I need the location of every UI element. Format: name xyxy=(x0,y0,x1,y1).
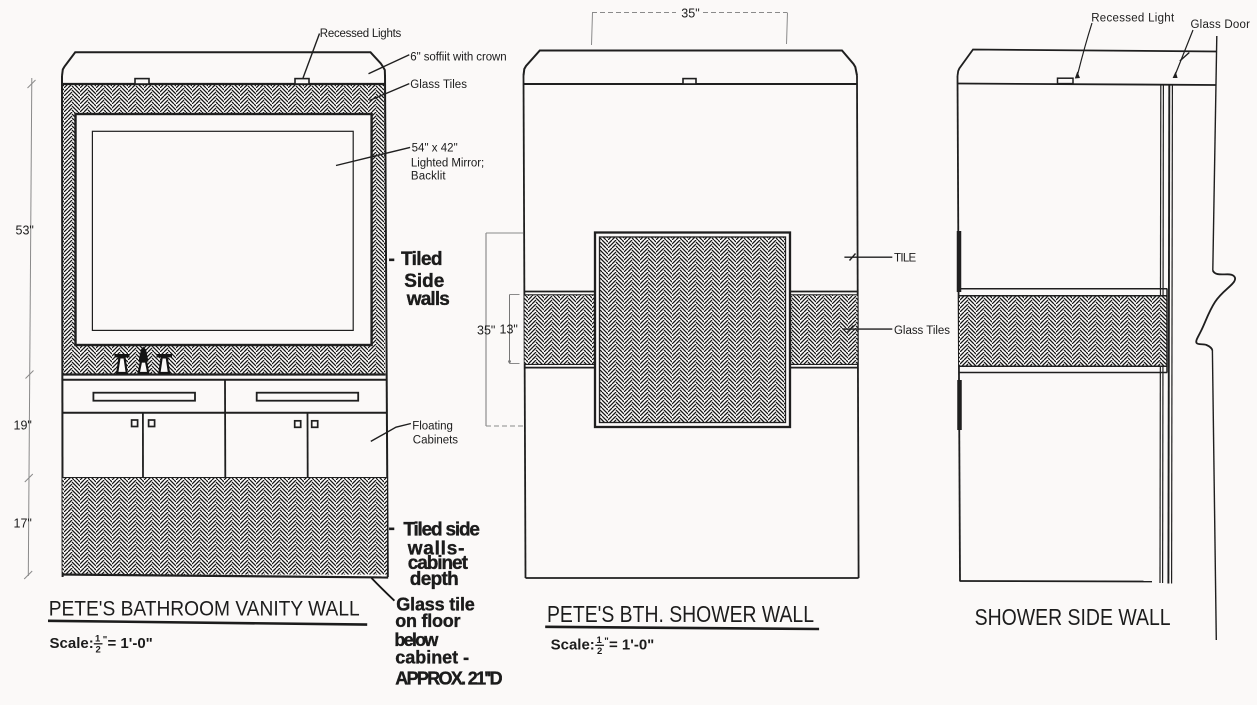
svg-text:Scale:: Scale: xyxy=(551,637,595,654)
svg-text:54" x 42": 54" x 42" xyxy=(412,143,458,155)
svg-text:Tiled side: Tiled side xyxy=(403,520,480,541)
svg-text:Tiled: Tiled xyxy=(401,249,443,270)
svg-text:= 1'-0": = 1'-0" xyxy=(609,637,654,654)
svg-text:Scale:: Scale: xyxy=(50,635,94,652)
svg-text:Cabinets: Cabinets xyxy=(413,434,458,446)
svg-text:35": 35" xyxy=(477,324,495,338)
svg-text:Floating: Floating xyxy=(412,420,453,432)
svg-text:6" soffiit with crown: 6" soffiit with crown xyxy=(410,51,506,63)
svg-text:53": 53" xyxy=(16,224,34,238)
svg-text:walls: walls xyxy=(406,289,450,310)
svg-text:Glass Tiles: Glass Tiles xyxy=(410,79,467,91)
svg-text:-: - xyxy=(389,518,395,539)
svg-text:2: 2 xyxy=(597,646,602,657)
svg-text:19": 19" xyxy=(14,419,32,433)
svg-text:Glass Tiles: Glass Tiles xyxy=(894,325,950,337)
svg-text:Recessed Lights: Recessed Lights xyxy=(320,28,402,40)
svg-text:TILE: TILE xyxy=(894,252,917,264)
svg-text:1: 1 xyxy=(597,635,603,646)
svg-text:Recessed Light: Recessed Light xyxy=(1091,13,1175,25)
svg-text:on floor: on floor xyxy=(395,611,460,631)
svg-text:Lighted Mirror;: Lighted Mirror; xyxy=(411,158,484,170)
svg-text:APPROX. 21''D: APPROX. 21''D xyxy=(395,669,502,689)
svg-text:cabinet -: cabinet - xyxy=(395,648,469,668)
svg-text:PETE'S BTH. SHOWER WALL: PETE'S BTH. SHOWER WALL xyxy=(547,601,814,627)
svg-text:17": 17" xyxy=(14,517,32,531)
svg-text:depth: depth xyxy=(410,569,459,590)
svg-text:1: 1 xyxy=(95,634,101,645)
svg-text:= 1'-0": = 1'-0" xyxy=(108,635,153,652)
svg-text:35": 35" xyxy=(681,7,699,21)
svg-text:PETE'S BATHROOM VANITY WALL: PETE'S BATHROOM VANITY WALL xyxy=(49,597,360,621)
svg-text:13": 13" xyxy=(500,323,518,337)
svg-text:Glass Door: Glass Door xyxy=(1191,19,1251,31)
svg-text:2: 2 xyxy=(96,645,101,656)
svg-text:-: - xyxy=(389,249,395,270)
svg-text:SHOWER SIDE WALL: SHOWER SIDE WALL xyxy=(975,604,1171,630)
svg-text:Backlit: Backlit xyxy=(411,171,446,183)
